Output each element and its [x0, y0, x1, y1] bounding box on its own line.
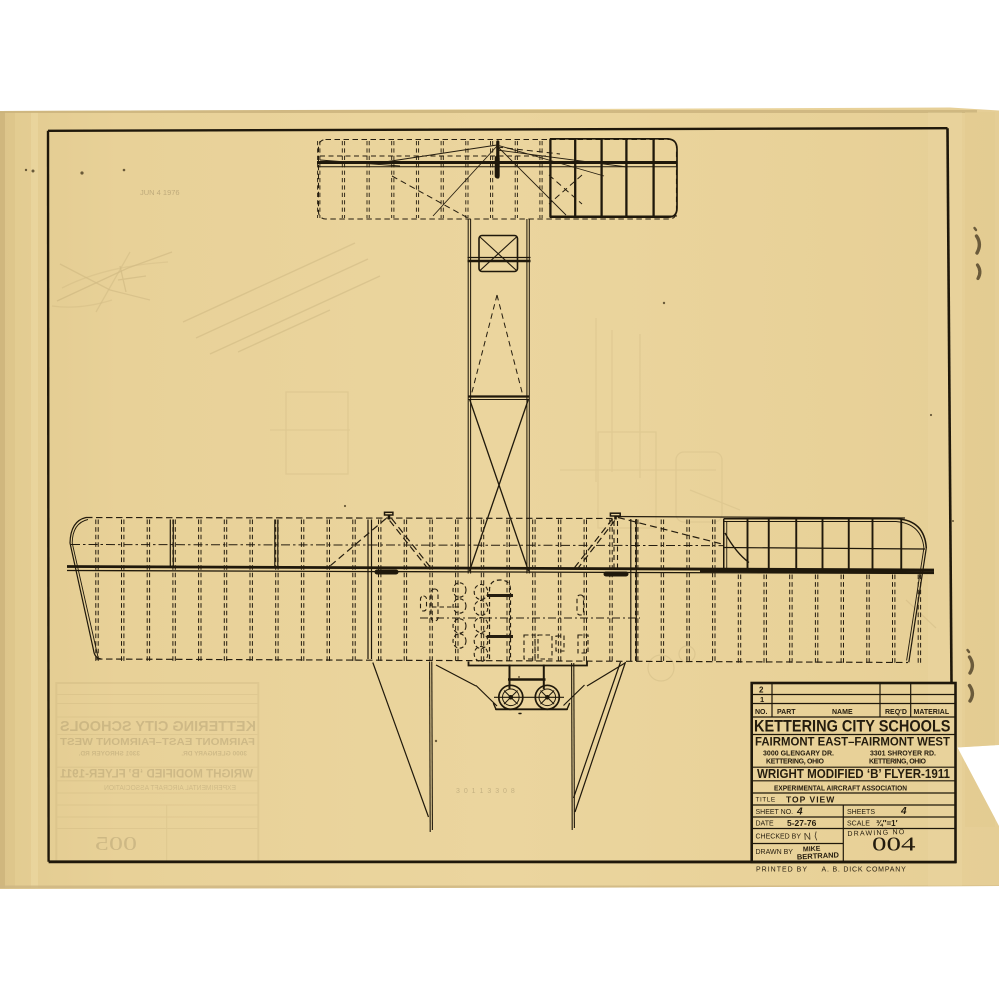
svg-text:REQ'D: REQ'D [885, 709, 907, 716]
svg-text:3301 SHROYER RD.: 3301 SHROYER RD. [78, 751, 140, 758]
svg-text:FAIRMONT EAST–FAIRMONT WEST: FAIRMONT EAST–FAIRMONT WEST [755, 737, 950, 749]
svg-text:KETTERING, OHIO: KETTERING, OHIO [766, 758, 825, 765]
svg-text:SCALE: SCALE [847, 821, 870, 828]
svg-text:SHEET NO.: SHEET NO. [756, 809, 794, 816]
svg-text:FAIRMONT EAST–FAIRMONT WEST: FAIRMONT EAST–FAIRMONT WEST [59, 736, 255, 748]
svg-text:SHEETS: SHEETS [847, 809, 875, 816]
svg-text:KETTERING CITY SCHOOLS: KETTERING CITY SCHOOLS [754, 718, 951, 736]
svg-text:5-27-76: 5-27-76 [787, 818, 817, 828]
svg-text:KETTERING CITY SCHOOLS: KETTERING CITY SCHOOLS [60, 718, 256, 735]
svg-text:KETTERING, OHIO: KETTERING, OHIO [869, 758, 927, 765]
svg-text:3000 GLENGARY DR.: 3000 GLENGARY DR. [763, 750, 834, 757]
svg-text:4: 4 [900, 806, 907, 817]
svg-text:CHECKED BY: CHECKED BY [756, 834, 802, 841]
svg-text:3000 GLENGARY DR.: 3000 GLENGARY DR. [181, 751, 247, 758]
svg-text:PRINTED BY: PRINTED BY [756, 867, 808, 874]
svg-text:EXPERIMENTAL AIRCRAFT ASSOCIAT: EXPERIMENTAL AIRCRAFT ASSOCIATION [104, 785, 236, 792]
svg-text:DATE: DATE [756, 821, 774, 828]
svg-text:¾″=1′: ¾″=1′ [876, 819, 898, 828]
svg-text:NAME: NAME [832, 709, 853, 716]
svg-text:004: 004 [872, 834, 916, 856]
svg-text:4: 4 [796, 807, 803, 818]
svg-text:2: 2 [759, 686, 764, 695]
svg-text:005: 005 [95, 833, 137, 855]
svg-text:WRIGHT MODIFIED ‘B’ FLYER-1911: WRIGHT MODIFIED ‘B’ FLYER-1911 [757, 767, 950, 781]
svg-text:TITLE: TITLE [756, 797, 776, 804]
svg-text:JUN 4 1976: JUN 4 1976 [140, 188, 180, 197]
svg-text:MATERIAL: MATERIAL [914, 709, 950, 716]
svg-text:3 0 1 1 3 3 0 8: 3 0 1 1 3 3 0 8 [456, 788, 516, 795]
svg-text:WRIGHT MODIFIED ‘B’ FLYER-1911: WRIGHT MODIFIED ‘B’ FLYER-1911 [59, 769, 253, 781]
svg-text:NO.: NO. [755, 709, 768, 716]
svg-text:1: 1 [760, 695, 764, 704]
svg-text:TOP VIEW: TOP VIEW [786, 795, 835, 805]
svg-text:3301 SHROYER RD.: 3301 SHROYER RD. [870, 750, 936, 757]
svg-text:DRAWN BY: DRAWN BY [756, 849, 794, 856]
svg-text:A. B. DICK COMPANY: A. B. DICK COMPANY [822, 867, 907, 874]
svg-text:EXPERIMENTAL AIRCRAFT ASSOCIAT: EXPERIMENTAL AIRCRAFT ASSOCIATION [774, 786, 907, 793]
svg-text:N ⟨: N ⟨ [803, 831, 818, 843]
svg-text:PART: PART [777, 709, 796, 716]
